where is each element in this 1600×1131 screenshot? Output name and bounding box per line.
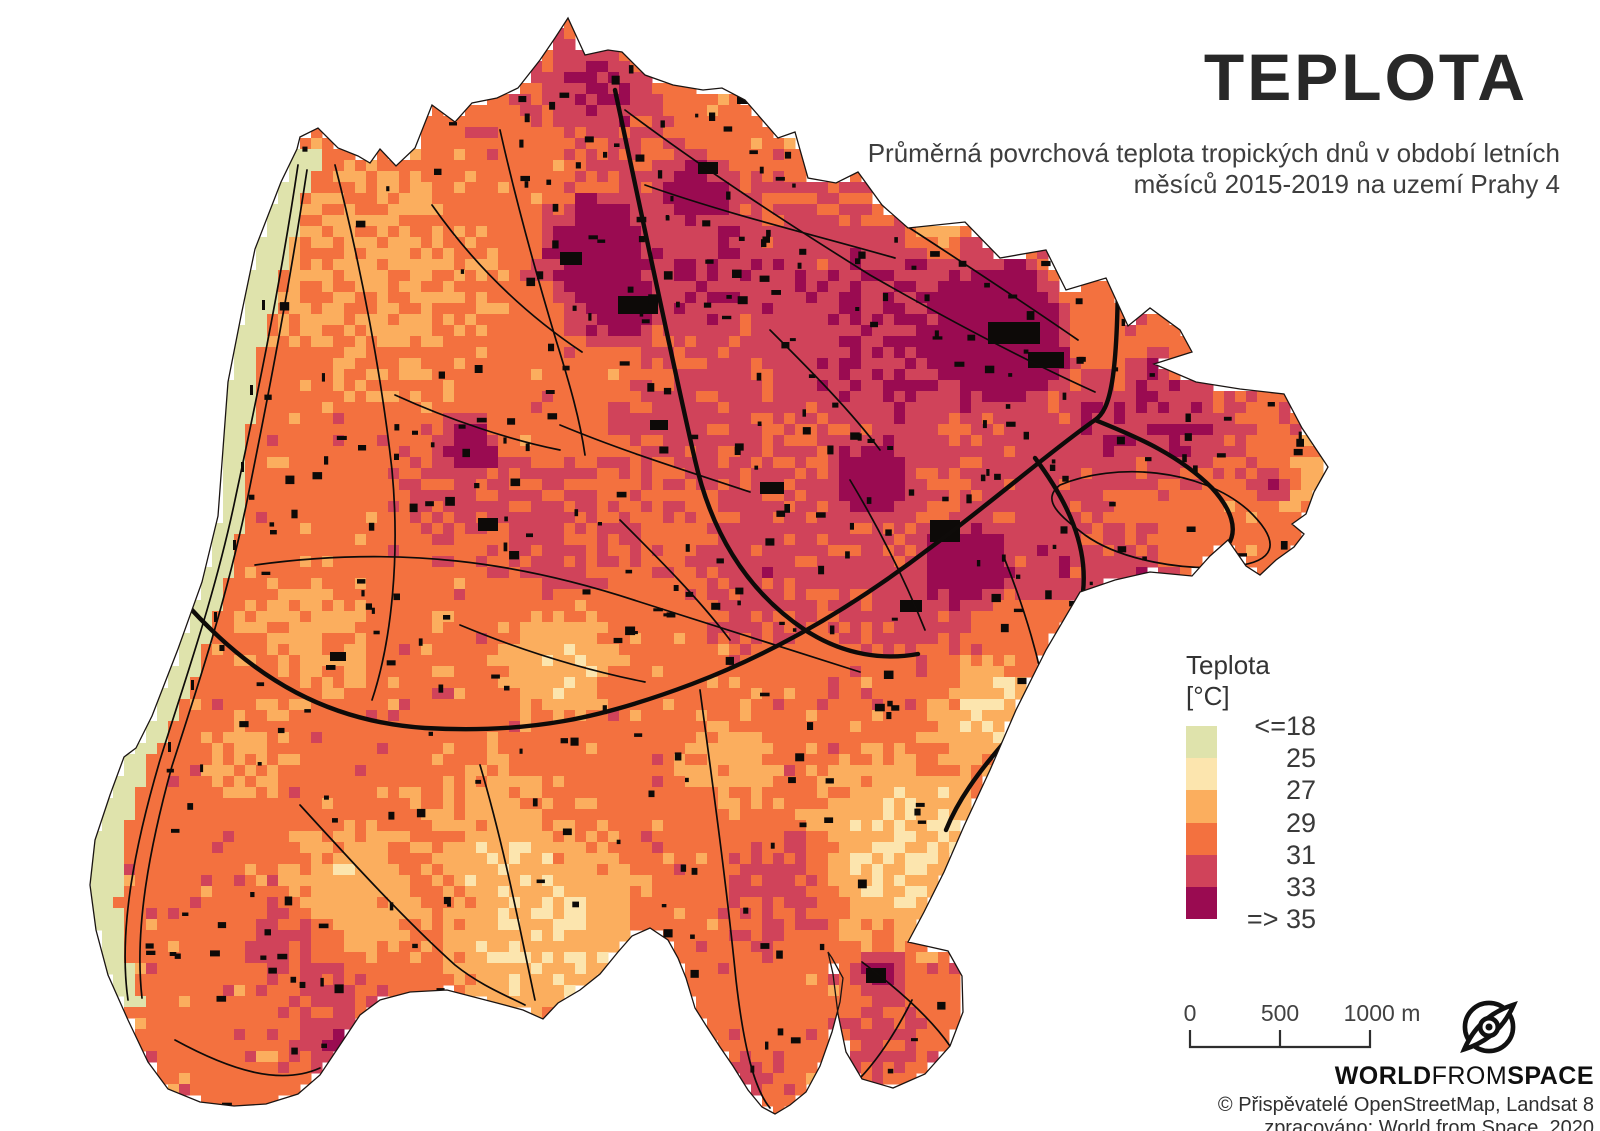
planet-orbit-icon [1452,990,1526,1064]
legend-body: <=182527293133=> 35 [1186,726,1316,926]
legend-title: Teplota [°C] [1186,650,1316,712]
legend-label-2: 27 [1186,775,1316,805]
legend-label-1: 25 [1186,743,1316,773]
header: TEPLOTA Průměrná povrchová teplota tropi… [868,44,1560,200]
branding-block: WORLDFROMSPACE © Přispěvatelé OpenStreet… [1214,990,1594,1131]
attribution-line-2: zpracováno: World from Space, 2020 [1264,1117,1594,1131]
page-title: TEPLOTA [868,44,1528,110]
legend-label-0: <=18 [1186,711,1316,741]
legend-label-5: 33 [1186,872,1316,902]
attribution: © Přispěvatelé OpenStreetMap, Landsat 8 … [1214,1094,1594,1131]
map-poster: TEPLOTA Průměrná povrchová teplota tropi… [0,0,1600,1131]
subtitle-line-1: Průměrná povrchová teplota tropických dn… [868,138,1560,168]
brand-word-from: FROM [1432,1062,1508,1090]
legend-label-4: 31 [1186,840,1316,870]
brand-word-world: WORLD [1335,1062,1432,1090]
attribution-line-1: © Přispěvatelé OpenStreetMap, Landsat 8 [1218,1094,1594,1116]
legend-label-3: 29 [1186,808,1316,838]
subtitle-line-2: měsíců 2015-2019 na uzemí Prahy 4 [1134,169,1560,199]
legend-labels: <=182527293133=> 35 [1186,726,1316,920]
brand-word-space: SPACE [1507,1062,1594,1090]
legend-label-6: => 35 [1186,904,1316,934]
map-subtitle: Průměrná povrchová teplota tropických dn… [868,138,1560,200]
brand-name: WORLDFROMSPACE [1214,1062,1594,1091]
map-legend: Teplota [°C] <=182527293133=> 35 [1186,650,1316,926]
